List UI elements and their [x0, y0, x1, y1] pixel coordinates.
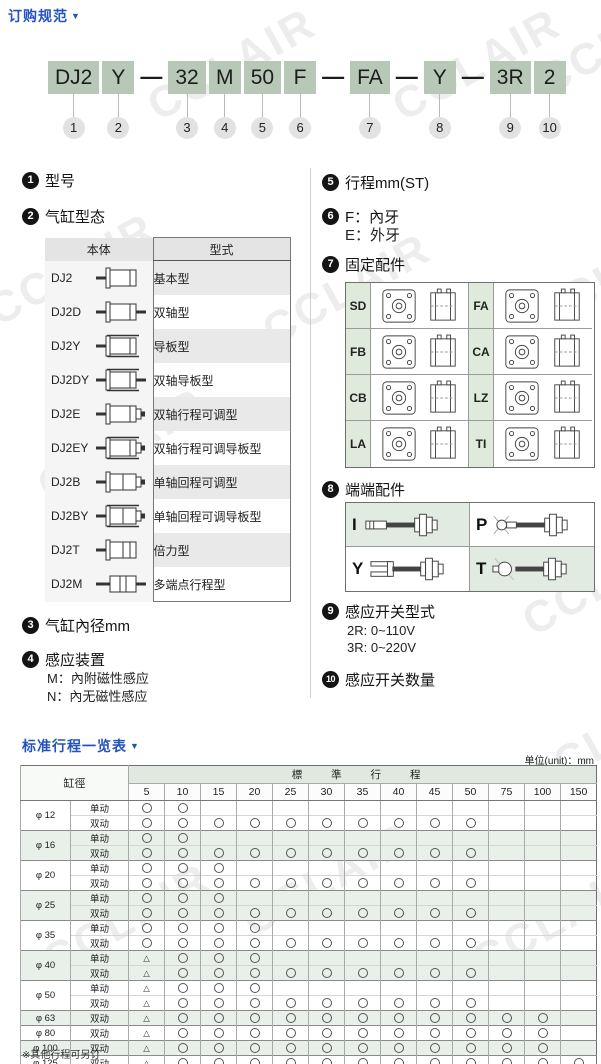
stroke-mark-cell: [417, 921, 453, 936]
conditional-triangle-mark: △: [143, 1043, 150, 1053]
stroke-mark-cell: [561, 861, 597, 876]
stroke-mark-cell: [381, 861, 417, 876]
title-arrow-icon: ▼: [130, 741, 140, 751]
standard-stroke-table: 缸徑標 準 行 程510152025303540455075100150φ 12…: [20, 765, 597, 1064]
stroke-mark-cell: [417, 1041, 453, 1056]
stroke-row: 双动: [21, 876, 597, 891]
stroke-mark-cell: [561, 1011, 597, 1026]
section-stroke: 5 行程mm(ST): [322, 171, 596, 193]
model-cell: DJ2EY: [45, 431, 153, 465]
action-cell: 单动: [71, 831, 129, 846]
type-label: 基本型: [153, 261, 290, 296]
position-number-badge: 10: [539, 117, 561, 139]
stroke-mark-cell: [201, 1026, 237, 1041]
connector-line: [73, 94, 74, 117]
available-circle-mark: [214, 968, 224, 978]
stroke-mark-cell: [309, 1026, 345, 1041]
stroke-mark-cell: [489, 951, 525, 966]
mounting-drawing-fa: [494, 283, 592, 329]
type-table-header-body: 本体: [45, 238, 153, 261]
section-number-badge: 9: [322, 603, 339, 620]
available-circle-mark: [538, 1013, 548, 1023]
stroke-mark-cell: [525, 1026, 561, 1041]
stroke-mark-cell: [489, 996, 525, 1011]
stroke-mark-cell: [201, 1041, 237, 1056]
stroke-row: φ 40单动△: [21, 951, 597, 966]
stroke-mark-cell: [345, 966, 381, 981]
stroke-mark-cell: [129, 861, 165, 876]
available-circle-mark: [358, 848, 368, 858]
available-circle-mark: [358, 818, 368, 828]
available-circle-mark: [214, 953, 224, 963]
available-circle-mark: [538, 1058, 548, 1064]
available-circle-mark: [178, 803, 188, 813]
available-circle-mark: [178, 1013, 188, 1023]
connector-line: [510, 94, 511, 117]
stroke-mark-cell: [165, 831, 201, 846]
available-circle-mark: [538, 1043, 548, 1053]
model-label: DJ2B: [51, 475, 80, 489]
action-cell: 双动: [71, 1026, 129, 1041]
connector-line: [262, 94, 263, 117]
stroke-mark-cell: [129, 846, 165, 861]
available-circle-mark: [322, 968, 332, 978]
bore-cell: φ 25: [21, 891, 71, 921]
type-table-row: DJ2EY双轴行程可调导板型: [45, 431, 290, 465]
position-number-badge: 4: [214, 117, 236, 139]
stroke-mark-cell: [525, 966, 561, 981]
stroke-mark-cell: [381, 906, 417, 921]
available-circle-mark: [214, 1058, 224, 1064]
mounting-front-view-icon: [380, 424, 418, 464]
action-cell: 双动: [71, 846, 129, 861]
type-label: 单轴回程可调导板型: [153, 499, 290, 533]
model-cell: DJ2: [45, 261, 153, 296]
stroke-mark-cell: [237, 951, 273, 966]
model-label: DJ2DY: [51, 373, 89, 387]
stroke-mark-cell: [165, 1011, 201, 1026]
rod-end-label-i: I: [352, 515, 357, 535]
stroke-mark-cell: [417, 951, 453, 966]
available-circle-mark: [358, 968, 368, 978]
available-circle-mark: [250, 1013, 260, 1023]
mounting-front-view-icon: [503, 424, 541, 464]
action-cell: 单动: [71, 801, 129, 816]
stroke-mark-cell: [237, 846, 273, 861]
section-title: F：內牙: [345, 206, 399, 227]
available-circle-mark: [466, 818, 476, 828]
stroke-mark-cell: [453, 831, 489, 846]
stroke-mark-cell: [309, 1041, 345, 1056]
available-circle-mark: [394, 998, 404, 1008]
available-circle-mark: [178, 908, 188, 918]
mounting-label-lz: LZ: [469, 375, 494, 421]
stroke-mark-cell: [201, 816, 237, 831]
stroke-column-header: 10: [165, 784, 201, 801]
model-code-unit: DJ21: [48, 61, 99, 139]
action-cell: 双动: [71, 906, 129, 921]
stroke-mark-cell: [417, 861, 453, 876]
available-circle-mark: [430, 1058, 440, 1064]
available-circle-mark: [214, 983, 224, 993]
bore-cell: φ 16: [21, 831, 71, 861]
rod-end-drawing-icon: [491, 510, 573, 540]
stroke-mark-cell: △: [129, 1026, 165, 1041]
stroke-mark-cell: [237, 1026, 273, 1041]
available-circle-mark: [538, 1028, 548, 1038]
available-circle-mark: [430, 1013, 440, 1023]
stroke-mark-cell: [309, 876, 345, 891]
available-circle-mark: [178, 1043, 188, 1053]
stroke-mark-cell: [489, 876, 525, 891]
available-circle-mark: [466, 1058, 476, 1064]
available-circle-mark: [322, 938, 332, 948]
model-code-box: 50: [244, 61, 281, 94]
stroke-mark-cell: [201, 1011, 237, 1026]
stroke-mark-cell: [561, 996, 597, 1011]
model-code-unit: 3R9: [490, 61, 531, 139]
available-circle-mark: [250, 953, 260, 963]
switch-type-3r: 3R: 0~220V: [347, 639, 596, 656]
available-circle-mark: [286, 908, 296, 918]
sensor-option-n: N：內无磁性感应: [47, 688, 308, 706]
mounting-drawing-la: [371, 421, 469, 467]
mounting-front-view-icon: [380, 378, 418, 418]
section-bore: 3 气缸內径mm: [22, 614, 308, 636]
stroke-row: 双动△: [21, 966, 597, 981]
stroke-row: φ 35单动: [21, 921, 597, 936]
action-cell: 单动: [71, 861, 129, 876]
available-circle-mark: [250, 878, 260, 888]
available-circle-mark: [466, 968, 476, 978]
section-switch-qty: 10 感应开关数量: [322, 668, 596, 690]
type-label: 双轴导板型: [153, 363, 290, 397]
stroke-mark-cell: [201, 966, 237, 981]
action-cell: 双动: [71, 936, 129, 951]
rod-end-cell-y: Y: [346, 547, 470, 591]
stroke-mark-cell: [237, 891, 273, 906]
available-circle-mark: [466, 1028, 476, 1038]
available-circle-mark: [286, 1058, 296, 1064]
stroke-mark-cell: [309, 846, 345, 861]
stroke-mark-cell: [489, 1011, 525, 1026]
stroke-column-header: 25: [273, 784, 309, 801]
stroke-mark-cell: [417, 906, 453, 921]
available-circle-mark: [250, 923, 260, 933]
stroke-mark-cell: [381, 876, 417, 891]
stroke-mark-cell: [561, 1056, 597, 1064]
stroke-mark-cell: [417, 1056, 453, 1064]
available-circle-mark: [322, 1028, 332, 1038]
stroke-mark-cell: [417, 816, 453, 831]
stroke-mark-cell: [381, 891, 417, 906]
available-circle-mark: [358, 998, 368, 1008]
stroke-mark-cell: [561, 816, 597, 831]
cylinder-dual-adj-guide-icon: [93, 435, 149, 461]
stroke-mark-cell: [345, 831, 381, 846]
stroke-row: φ 20单动: [21, 861, 597, 876]
available-circle-mark: [178, 983, 188, 993]
left-column: 1 型号 2 气缸型态 本体型式DJ2基本型DJ2D双轴型DJ2Y导板型DJ2D…: [22, 165, 308, 706]
stroke-mark-cell: [345, 951, 381, 966]
stroke-mark-cell: [525, 891, 561, 906]
stroke-mark-cell: [561, 921, 597, 936]
model-code-unit: 210: [534, 61, 566, 139]
model-label: DJ2EY: [51, 441, 88, 455]
stroke-row: φ 63双动△: [21, 1011, 597, 1026]
stroke-mark-cell: [165, 981, 201, 996]
stroke-row: φ 80双动△: [21, 1026, 597, 1041]
stroke-mark-cell: [525, 816, 561, 831]
available-circle-mark: [250, 938, 260, 948]
stroke-mark-cell: [489, 831, 525, 846]
cylinder-dual-adj-icon: [93, 401, 149, 427]
available-circle-mark: [214, 1028, 224, 1038]
stroke-mark-cell: [489, 1056, 525, 1064]
available-circle-mark: [430, 998, 440, 1008]
mounting-drawing-sd: [371, 283, 469, 329]
stroke-mark-cell: [201, 996, 237, 1011]
stroke-mark-cell: [237, 1056, 273, 1064]
stroke-mark-cell: [273, 876, 309, 891]
stroke-mark-cell: [453, 846, 489, 861]
stroke-mark-cell: [525, 906, 561, 921]
available-circle-mark: [322, 1058, 332, 1064]
available-circle-mark: [430, 878, 440, 888]
stroke-mark-cell: [453, 936, 489, 951]
stroke-mark-cell: [525, 1011, 561, 1026]
stroke-mark-cell: [489, 906, 525, 921]
model-code-separator: —: [137, 61, 165, 94]
rod-end-cell-i: I: [346, 503, 470, 547]
available-circle-mark: [394, 818, 404, 828]
action-cell: 双动: [71, 876, 129, 891]
available-circle-mark: [214, 863, 224, 873]
available-circle-mark: [358, 1013, 368, 1023]
stroke-mark-cell: [237, 1011, 273, 1026]
available-circle-mark: [502, 1028, 512, 1038]
stroke-mark-cell: [381, 966, 417, 981]
mounting-side-view-icon: [427, 424, 459, 464]
available-circle-mark: [142, 833, 152, 843]
available-circle-mark: [178, 1028, 188, 1038]
mounting-label-ti: TI: [469, 421, 494, 467]
stroke-mark-cell: [129, 921, 165, 936]
stroke-mark-cell: [381, 1056, 417, 1064]
stroke-mark-cell: [345, 906, 381, 921]
mounting-side-view-icon: [551, 378, 583, 418]
column-divider: [310, 168, 311, 698]
stroke-mark-cell: [309, 891, 345, 906]
bore-cell: φ 12: [21, 801, 71, 831]
stroke-mark-cell: [561, 801, 597, 816]
available-circle-mark: [214, 908, 224, 918]
stroke-mark-cell: [237, 876, 273, 891]
stroke-mark-cell: [489, 966, 525, 981]
bore-cell: φ 35: [21, 921, 71, 951]
available-circle-mark: [214, 878, 224, 888]
available-circle-mark: [502, 1058, 512, 1064]
stroke-column-header: 5: [129, 784, 165, 801]
stroke-row: 双动: [21, 816, 597, 831]
stroke-mark-cell: [165, 996, 201, 1011]
stroke-mark-cell: [345, 996, 381, 1011]
mounting-label-fb: FB: [346, 329, 371, 375]
stroke-mark-cell: [273, 831, 309, 846]
model-cell: DJ2Y: [45, 329, 153, 363]
section-thread: 6 F：內牙: [322, 205, 596, 227]
available-circle-mark: [286, 998, 296, 1008]
type-label: 倍力型: [153, 533, 290, 567]
stroke-mark-cell: [237, 981, 273, 996]
available-circle-mark: [358, 1058, 368, 1064]
type-table-row: DJ2BY单轴回程可调导板型: [45, 499, 290, 533]
available-circle-mark: [430, 848, 440, 858]
model-code-unit: F6: [284, 61, 316, 139]
stroke-mark-cell: [381, 846, 417, 861]
stroke-mark-cell: [417, 831, 453, 846]
stroke-row: 双动△: [21, 996, 597, 1011]
position-number-badge: 9: [499, 117, 521, 139]
available-circle-mark: [178, 998, 188, 1008]
stroke-mark-cell: [489, 861, 525, 876]
stroke-mark-cell: △: [129, 966, 165, 981]
stroke-mark-cell: [309, 951, 345, 966]
stroke-mark-cell: [453, 1056, 489, 1064]
stroke-mark-cell: [345, 1056, 381, 1064]
available-circle-mark: [286, 848, 296, 858]
stroke-mark-cell: [417, 1026, 453, 1041]
switch-type-2r: 2R: 0~110V: [347, 622, 596, 639]
page-title: 订购规范▼: [8, 6, 81, 26]
stroke-mark-cell: [525, 996, 561, 1011]
available-circle-mark: [322, 908, 332, 918]
stroke-mark-cell: [381, 981, 417, 996]
cylinder-basic-icon: [93, 265, 149, 291]
stroke-mark-cell: [237, 996, 273, 1011]
rod-end-label-t: T: [476, 559, 486, 579]
available-circle-mark: [214, 923, 224, 933]
available-circle-mark: [430, 1043, 440, 1053]
type-label: 双轴行程可调型: [153, 397, 290, 431]
mounting-accessory-grid: SDFAFBCACBLZLATI: [345, 282, 595, 468]
action-cell: 双动: [71, 966, 129, 981]
stroke-mark-cell: [273, 921, 309, 936]
available-circle-mark: [394, 1013, 404, 1023]
stroke-mark-cell: [309, 921, 345, 936]
stroke-mark-cell: [453, 906, 489, 921]
stroke-mark-cell: [561, 1041, 597, 1056]
available-circle-mark: [358, 1043, 368, 1053]
model-code-box: 2: [534, 61, 566, 94]
available-circle-mark: [394, 1058, 404, 1064]
mounting-label-sd: SD: [346, 283, 371, 329]
available-circle-mark: [250, 908, 260, 918]
stroke-mark-cell: [273, 936, 309, 951]
stroke-mark-cell: [561, 831, 597, 846]
model-code-box: 3R: [490, 61, 531, 94]
conditional-triangle-mark: △: [143, 953, 150, 963]
available-circle-mark: [358, 938, 368, 948]
model-code-box: M: [209, 61, 241, 94]
available-circle-mark: [142, 863, 152, 873]
bore-cell: φ 50: [21, 981, 71, 1011]
section-number-badge: 5: [322, 174, 339, 191]
bore-cell: φ 20: [21, 861, 71, 891]
stroke-mark-cell: [381, 996, 417, 1011]
mounting-side-view-icon: [551, 286, 583, 326]
stroke-mark-cell: △: [129, 981, 165, 996]
available-circle-mark: [466, 848, 476, 858]
stroke-mark-cell: [273, 846, 309, 861]
stroke-mark-cell: [273, 966, 309, 981]
model-label: DJ2: [51, 271, 72, 285]
stroke-column-header: 75: [489, 784, 525, 801]
stroke-mark-cell: [525, 876, 561, 891]
available-circle-mark: [286, 968, 296, 978]
stroke-mark-cell: [129, 906, 165, 921]
stroke-mark-cell: [273, 891, 309, 906]
stroke-mark-cell: [345, 861, 381, 876]
type-label: 单轴回程可调型: [153, 465, 290, 499]
stroke-mark-cell: [237, 861, 273, 876]
rod-end-drawing-icon: [367, 554, 449, 584]
available-circle-mark: [430, 968, 440, 978]
stroke-column-header: 15: [201, 784, 237, 801]
available-circle-mark: [286, 818, 296, 828]
available-circle-mark: [466, 908, 476, 918]
available-circle-mark: [430, 1028, 440, 1038]
available-circle-mark: [142, 803, 152, 813]
stroke-mark-cell: [525, 831, 561, 846]
available-circle-mark: [250, 983, 260, 993]
stroke-mark-cell: [201, 891, 237, 906]
mounting-front-view-icon: [503, 332, 541, 372]
stroke-mark-cell: [273, 1056, 309, 1064]
stroke-column-header: 30: [309, 784, 345, 801]
available-circle-mark: [466, 998, 476, 1008]
stroke-mark-cell: [129, 801, 165, 816]
available-circle-mark: [358, 878, 368, 888]
stroke-group-header: 標 準 行 程: [129, 766, 597, 784]
model-label: DJ2M: [51, 577, 82, 591]
available-circle-mark: [178, 968, 188, 978]
stroke-mark-cell: [525, 921, 561, 936]
connector-line: [224, 94, 225, 117]
cylinder-guide-icon: [93, 333, 149, 359]
stroke-mark-cell: [489, 1026, 525, 1041]
stroke-mark-cell: [273, 951, 309, 966]
model-code-unit: M4: [209, 61, 241, 139]
section-cylinder-form: 2 气缸型态: [22, 205, 308, 227]
position-number-badge: 1: [63, 117, 85, 139]
section-number-badge: 2: [22, 208, 39, 225]
stroke-mark-cell: [165, 951, 201, 966]
rod-end-cell-p: P: [470, 503, 594, 547]
available-circle-mark: [214, 938, 224, 948]
action-cell: 单动: [71, 981, 129, 996]
type-table-header-form: 型式: [153, 238, 290, 261]
bore-header: 缸徑: [21, 766, 129, 801]
stroke-mark-cell: [453, 876, 489, 891]
stroke-mark-cell: [525, 951, 561, 966]
available-circle-mark: [178, 878, 188, 888]
section-title: 感应开关数量: [345, 669, 435, 690]
available-circle-mark: [142, 893, 152, 903]
model-code-box: F: [284, 61, 316, 94]
available-circle-mark: [214, 1013, 224, 1023]
available-circle-mark: [142, 848, 152, 858]
